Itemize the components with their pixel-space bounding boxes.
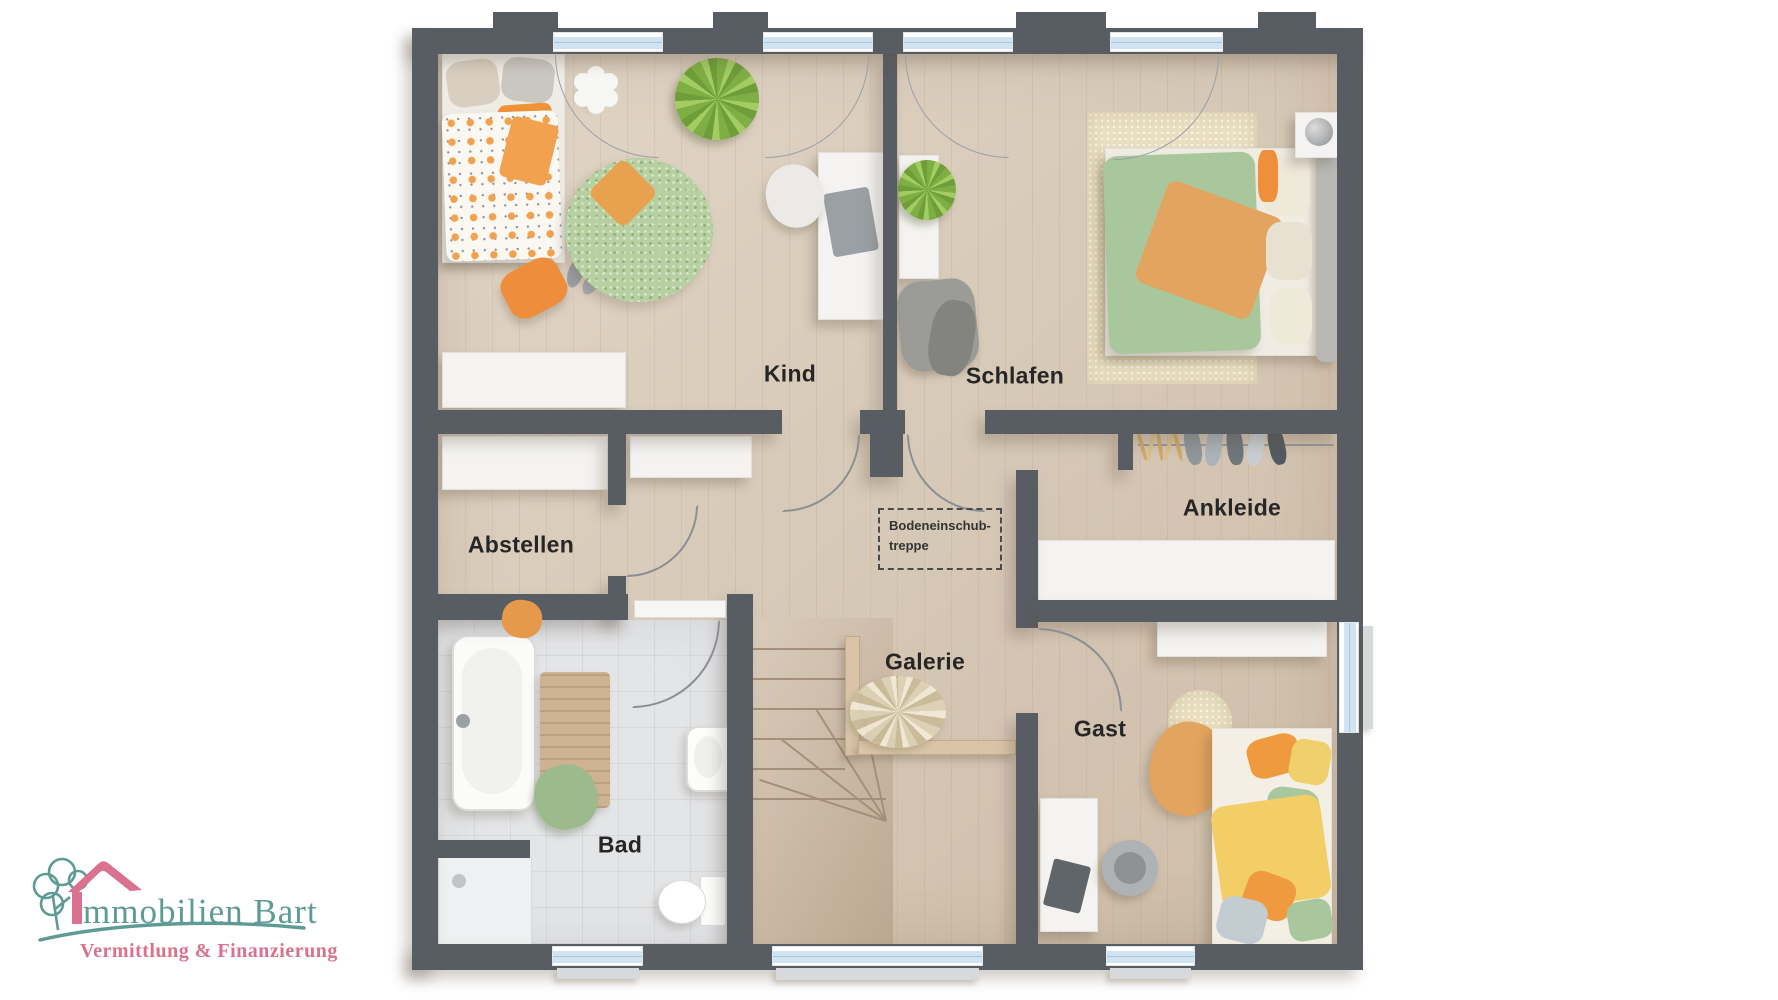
bathtub-inner: [462, 648, 522, 794]
brand-initial-bar: [72, 892, 82, 924]
window-gast-east: [1339, 622, 1359, 733]
facade-pier: [1016, 12, 1106, 28]
attic-hatch-line2: treppe: [889, 536, 1000, 556]
bathtub-faucet-icon: [456, 714, 470, 728]
wall-hall-north-a: [438, 410, 782, 434]
shower-drain-icon: [452, 874, 466, 888]
roof-icon: [68, 861, 142, 892]
wall-gast-left-top: [1016, 470, 1038, 628]
outer-wall-left: [412, 28, 438, 970]
wall-hall-north-c: [985, 410, 1337, 434]
plant-icon: [675, 58, 759, 140]
wall-kind-schlafen: [883, 54, 897, 410]
window-kind-1: [553, 32, 663, 52]
window-sill: [1363, 626, 1373, 729]
room-label-schlafen: Schlafen: [966, 363, 1064, 390]
window-sill: [776, 968, 979, 980]
wall-ankleide-bottom: [1038, 600, 1337, 622]
pillow-icon: [1266, 222, 1312, 280]
company-logo: mmobilien Bart Vermittlung & Finanzierun…: [28, 852, 328, 982]
halfwall-bath: [438, 840, 530, 858]
room-label-kind: Kind: [764, 361, 816, 388]
door-leaf-bad: [634, 600, 726, 618]
floorplan-image: Kind Schlafen Abstellen Ankleide Galerie…: [0, 0, 1778, 1000]
wall-abstellen-right-top: [608, 434, 626, 505]
stair-tread: [753, 738, 845, 740]
window-gast-south: [1106, 946, 1195, 966]
room-label-gast: Gast: [1074, 716, 1126, 743]
room-label-galerie: Galerie: [885, 649, 965, 676]
dried-plant-icon: [850, 676, 946, 748]
ankleide-sideboard: [1038, 540, 1335, 602]
logo-brand-text: mmobilien Bart: [83, 892, 318, 932]
pillow-icon: [1258, 150, 1278, 202]
room-label-bad: Bad: [598, 832, 642, 859]
gast-shelf: [1157, 618, 1327, 657]
window-bad: [552, 946, 643, 966]
headboard: [1316, 142, 1338, 362]
abstellen-cabinet: [442, 436, 608, 490]
toilet-bowl: [658, 880, 706, 924]
window-galerie: [772, 946, 983, 966]
wall-ankleide-stub: [1118, 434, 1133, 470]
sink-basin: [694, 736, 722, 778]
pillow-icon: [444, 57, 502, 110]
attic-hatch-line1: Bodeneinschub-: [889, 516, 1000, 536]
pillow-icon: [1270, 288, 1312, 344]
stair-tread: [753, 708, 845, 710]
window-sill: [557, 968, 639, 979]
wall-stub-divider: [870, 434, 903, 477]
lamp-icon: [1305, 118, 1333, 146]
window-sill: [1110, 968, 1191, 979]
outer-wall-right: [1337, 28, 1363, 970]
plant-icon: [898, 160, 956, 220]
window-schlafen-2: [1110, 32, 1223, 52]
window-schlafen-1: [903, 32, 1013, 52]
wall-hall-north-b: [860, 410, 905, 434]
shower-floor: [438, 856, 532, 946]
stair-tread: [753, 768, 845, 770]
logo-tagline-text: Vermittlung & Finanzierung: [80, 940, 338, 963]
office-chair-seat: [1114, 852, 1146, 884]
facade-pier: [713, 12, 768, 28]
pillow-icon: [500, 55, 556, 104]
hall-sideboard: [630, 436, 752, 478]
staircase: [753, 618, 893, 944]
window-kind-2: [763, 32, 873, 52]
wall-bad-right: [727, 594, 753, 944]
attic-hatch-annotation: Bodeneinschub- treppe: [878, 508, 1002, 570]
facade-pier: [1258, 12, 1316, 28]
room-label-abstellen: Abstellen: [468, 532, 574, 559]
facade-pier: [493, 12, 558, 28]
wall-gast-left-bottom: [1016, 713, 1038, 944]
room-label-ankleide: Ankleide: [1183, 495, 1281, 522]
kind-sideboard: [442, 352, 626, 408]
stair-tread: [753, 648, 845, 650]
stair-tread: [753, 678, 845, 680]
